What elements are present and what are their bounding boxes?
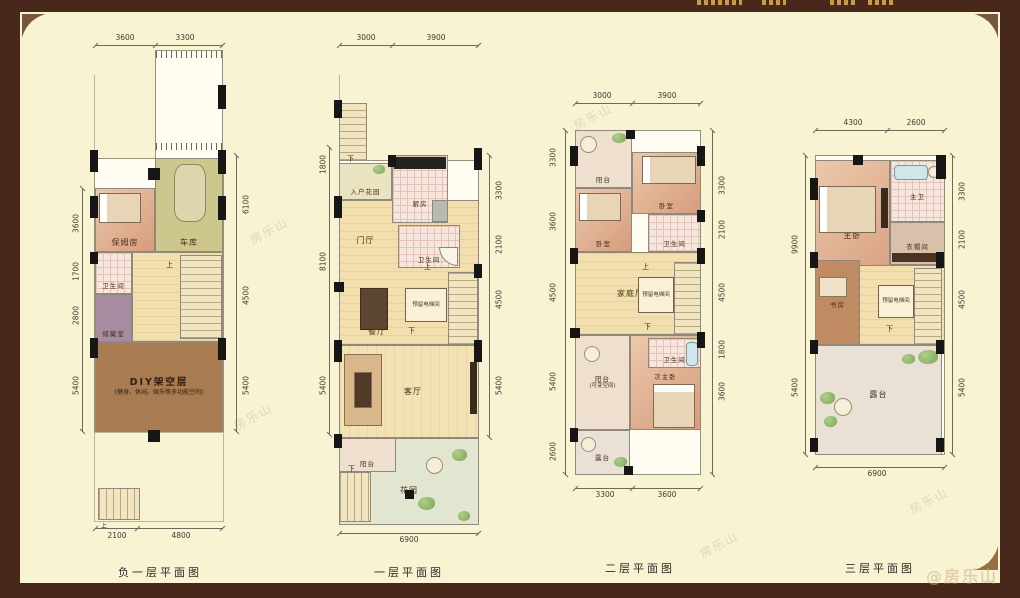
wall-column (626, 130, 635, 139)
corner-ornament-icon (972, 14, 998, 40)
room-label: 预留电梯间 (882, 298, 910, 304)
dimension: 4500 (242, 278, 251, 314)
stair-up-label: 上 (166, 260, 173, 270)
wall-column (90, 338, 98, 358)
dimension: 6100 (242, 187, 251, 223)
wall-column (90, 196, 98, 218)
dimension-line (575, 488, 701, 489)
wall-column (810, 178, 818, 200)
plant-icon (918, 350, 938, 364)
room-label: 客厅 (404, 387, 422, 397)
dimension: 3000 (580, 91, 624, 100)
dining-table-icon (360, 288, 388, 330)
dimension: 5400 (319, 368, 328, 404)
car-icon (174, 164, 206, 222)
wall-column (624, 466, 633, 475)
wall-column (218, 85, 226, 109)
round-table-icon (834, 398, 852, 416)
room-terrace-third: 露台 (815, 345, 942, 455)
room-label: 卧室 (596, 240, 611, 248)
plan-title-basement: 负一层平面图 (95, 564, 225, 580)
dimension: 3300 (958, 174, 967, 210)
dimension: 3600 (642, 490, 692, 499)
stairs-icon (339, 472, 371, 522)
dimension: 4500 (958, 282, 967, 318)
dimension: 5400 (791, 370, 800, 406)
room-terrace-second: 露台 (575, 430, 630, 475)
room-label: 阳台(可变空间) (589, 375, 615, 390)
tv-cabinet-icon (881, 188, 888, 228)
room-bath-b: 卫生间 (648, 338, 701, 368)
room-label: 阳台 (360, 460, 375, 468)
wall-column (936, 438, 944, 452)
corner-ornament-icon (22, 14, 48, 40)
plant-icon (824, 416, 837, 427)
dimension: 3300 (163, 33, 207, 42)
wall-column (810, 252, 818, 268)
dimension: 3600 (103, 33, 147, 42)
dimension: 2100 (958, 222, 967, 258)
tv-cabinet-icon (470, 362, 477, 414)
room-label: 卫生间 (663, 240, 686, 248)
wall-column (697, 146, 705, 166)
dimension: 1800 (319, 147, 328, 183)
dimension: 4500 (495, 282, 504, 318)
dimension-line (339, 533, 479, 534)
dimension: 3600 (718, 374, 727, 410)
dimension: 3300 (718, 168, 727, 204)
stairs-icon (914, 268, 942, 345)
stairs-icon (674, 262, 701, 335)
wall-column (334, 196, 342, 218)
stairs-icon (339, 103, 367, 161)
stair-down-label: 下 (408, 326, 415, 336)
plan-title-first: 一层平面图 (339, 564, 479, 580)
room-garage: 车库 (155, 158, 223, 252)
wall-column (405, 490, 414, 499)
room-storage: 储藏室 (95, 294, 132, 342)
dimension-line (236, 155, 237, 432)
room-bath: 卫生间 (95, 252, 132, 294)
wall-column (90, 150, 98, 172)
stair-down-label: 下 (886, 324, 893, 334)
room-label: 卧室 (659, 202, 674, 210)
plan-title-third: 三层平面图 (815, 560, 945, 576)
wall-column (148, 430, 160, 442)
dimension-line (712, 130, 713, 475)
dimension: 2600 (894, 118, 938, 127)
stairs-icon (448, 272, 478, 345)
room-label: 预留电梯间 (642, 292, 670, 298)
room-living: 客厅 (339, 345, 479, 438)
room-label: 书房 (830, 301, 845, 309)
stair-down-label: 下 (644, 322, 651, 332)
stair-down-label: 下 (347, 154, 354, 164)
kitchen-counter-icon (394, 157, 446, 169)
wall-column (218, 150, 226, 174)
room-label: 衣帽间 (906, 243, 929, 251)
round-table-icon (580, 136, 597, 153)
stairs-icon (98, 488, 140, 520)
dimension-line (329, 147, 330, 435)
room-entry-garden: 入户花园 (339, 163, 392, 200)
dimension: 3300 (580, 490, 630, 499)
room-label: 主卫 (910, 193, 925, 201)
room-label: 门厅 (357, 236, 375, 246)
room-label: 入户花园 (351, 188, 381, 196)
dimension-line (815, 130, 945, 131)
bathtub-icon (894, 165, 928, 180)
dimension: 3900 (414, 33, 458, 42)
wall-column (936, 252, 944, 268)
desk-icon (819, 277, 847, 297)
plan-title-second: 二层平面图 (575, 560, 705, 576)
elevator-shaft: 预留电梯间 (878, 285, 914, 318)
wall-column (474, 340, 482, 362)
room-kitchen: 厨房 (392, 155, 448, 223)
wall-column (936, 155, 946, 179)
dimension: 3900 (645, 91, 689, 100)
round-table-icon (426, 457, 443, 474)
room-label: 预留电梯间 (412, 302, 440, 308)
dimension: 6900 (384, 535, 434, 544)
room-label: 车库 (180, 238, 198, 248)
dimension: 1800 (718, 332, 727, 368)
dimension-line (339, 45, 479, 46)
room-study: 书房 (815, 260, 860, 345)
wall-column (474, 264, 482, 278)
room-label: 储藏室 (102, 330, 125, 338)
dimension-line (805, 155, 806, 455)
elevator-shaft: 预留电梯间 (638, 277, 674, 313)
dimension: 3600 (72, 206, 81, 242)
dimension: 5400 (549, 364, 558, 400)
wall-column (697, 210, 705, 222)
stairs-icon (180, 255, 222, 339)
wall-column (936, 340, 944, 354)
plant-icon (612, 133, 626, 143)
wall-column (474, 148, 482, 170)
wall-column (697, 248, 705, 264)
dimension: 1700 (72, 254, 81, 290)
dimension: 2100 (718, 212, 727, 248)
room-balcony-flex: 阳台(可变空间) (575, 335, 630, 430)
dimension: 5400 (495, 368, 504, 404)
wall-column (218, 338, 226, 360)
wall-column (334, 434, 342, 448)
dimension-line (575, 103, 701, 104)
dimension: 3600 (549, 204, 558, 240)
driveway-hatch (156, 143, 222, 150)
shower-icon (439, 247, 458, 266)
round-table-icon (584, 346, 600, 362)
room-balcony-second: 阳台 (575, 130, 632, 188)
dimension: 5400 (958, 370, 967, 406)
top-border-glyphs (762, 0, 786, 5)
dimension: 2100 (495, 227, 504, 263)
dimension: 3300 (495, 173, 504, 209)
wall-column (810, 438, 818, 452)
dimension: 6900 (852, 469, 902, 478)
room-bath-a: 卫生间 (648, 214, 701, 252)
dimension-line (82, 188, 83, 432)
room-diy: DIY架空层(健身、休闲、娱乐等多功能空间) (95, 342, 223, 432)
dimension: 9900 (791, 227, 800, 263)
room-label: 厨房 (413, 200, 428, 208)
bed-icon (819, 186, 876, 233)
plant-icon (820, 392, 835, 404)
wall-column (810, 340, 818, 354)
dimension: 3300 (549, 140, 558, 176)
room-label: 卫生间 (102, 282, 125, 290)
wall-column (90, 252, 98, 264)
wall-column (570, 428, 578, 442)
floorplan-poster: 房乐山 房乐山 房乐山 房乐山 房乐山 房乐山 @房乐山 车库 保姆房 上 卫生… (0, 0, 1020, 598)
room-dining: 餐厅 (339, 282, 415, 345)
plant-icon (418, 497, 435, 510)
wall-column (570, 146, 578, 166)
wall-column (334, 282, 344, 292)
top-border-glyphs (830, 0, 858, 5)
wall-column (853, 155, 863, 165)
room-bedroom-1: 卧室 (632, 152, 701, 214)
elevator-shaft: 预留电梯间 (405, 288, 447, 322)
wall-column (388, 155, 396, 167)
top-border-glyphs (868, 0, 894, 5)
wall-column (697, 332, 705, 348)
dimension: 5400 (242, 368, 251, 404)
room-bedroom-2: 卧室 (575, 188, 632, 252)
wall-column (334, 100, 342, 118)
dimension: 8100 (319, 244, 328, 280)
room-foyer: 门厅 (339, 200, 392, 282)
coffee-table-icon (354, 372, 372, 408)
wall-column (218, 196, 226, 220)
dimension: 4800 (150, 531, 212, 540)
wall-column (334, 340, 342, 362)
wall-column (148, 168, 160, 180)
stair-up-label: 上 (642, 262, 649, 272)
room-label: 卫生间 (663, 356, 686, 364)
dimension-line (95, 528, 223, 529)
round-table-icon (581, 437, 596, 452)
room-label: 次主卧 (654, 373, 677, 381)
top-border-glyphs (697, 0, 742, 5)
bed-icon (653, 384, 695, 428)
bed-icon (642, 156, 696, 184)
dimension: 4300 (831, 118, 875, 127)
dimension: 3000 (344, 33, 388, 42)
plant-icon (902, 354, 915, 364)
bed-icon (99, 193, 141, 223)
dimension: 2100 (96, 531, 138, 540)
bed-icon (579, 193, 621, 221)
driveway-hatch (156, 51, 222, 58)
room-label: 阳台 (596, 176, 611, 184)
room-label: DIY架空层(健身、休闲、娱乐等多功能空间) (115, 377, 204, 396)
dimension: 2600 (549, 434, 558, 470)
wall-column (570, 328, 580, 338)
dimension-line (489, 155, 490, 438)
room-label: 露台 (595, 454, 610, 462)
plant-icon (458, 511, 470, 521)
dimension-line (95, 45, 223, 46)
room-nanny: 保姆房 (95, 188, 155, 252)
room-label: 保姆房 (112, 238, 139, 248)
dimension: 4500 (549, 275, 558, 311)
room-label: 露台 (870, 390, 888, 400)
dimension-line (952, 155, 953, 455)
dimension-line (565, 130, 566, 475)
wall-column (570, 248, 578, 264)
dimension: 4500 (718, 275, 727, 311)
plant-icon (373, 165, 385, 174)
dimension-line (815, 467, 945, 468)
stair-up-label: 上 (424, 262, 431, 272)
plant-icon (452, 449, 467, 461)
dimension: 5400 (72, 368, 81, 404)
dimension: 2800 (72, 298, 81, 334)
fridge-icon (432, 200, 448, 222)
